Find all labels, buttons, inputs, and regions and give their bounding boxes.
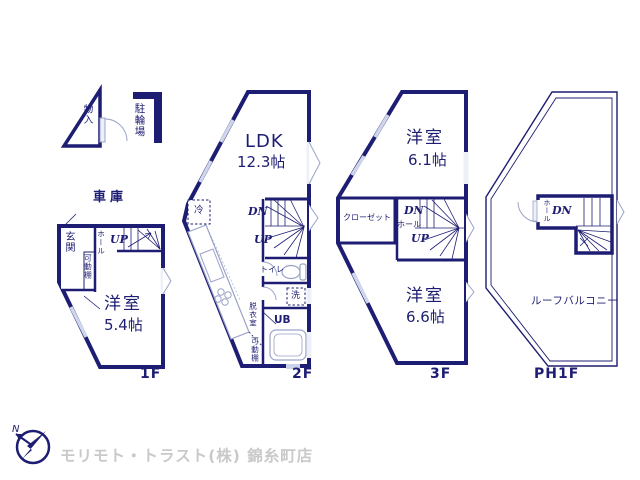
- floor-label-ph1f: PH1F: [534, 367, 579, 381]
- stairs-ph1f: [576, 198, 611, 251]
- room-upper-size-3f: 6.1帖: [408, 153, 447, 168]
- ldk-size-label: 12.3帖: [237, 155, 285, 170]
- fridge-label: 冷: [194, 206, 204, 216]
- floor-label-2f: 2F: [292, 367, 313, 381]
- room-upper-label-3f: 洋室: [406, 130, 444, 147]
- shelf-label-2f: 可動棚: [251, 337, 259, 363]
- floor-label-3f: 3F: [430, 367, 451, 381]
- storage-label: 物入: [82, 104, 92, 125]
- door-gap: [262, 287, 265, 300]
- shelf-label-1f: 可動棚: [84, 254, 92, 280]
- window: [464, 152, 469, 184]
- up-label-1f: UP: [110, 234, 128, 245]
- floor-plan-image: N 物入 駐輪場 車庫 玄関 可動棚 ホール UP 洋室 5.4帖 1F LDK…: [0, 0, 640, 480]
- bay-window: [309, 142, 320, 184]
- compass-icon: N: [12, 424, 49, 463]
- floor-plan-ph1f: [486, 92, 624, 366]
- ldk-label: LDK: [245, 133, 284, 151]
- dn-label-3f: DN: [404, 205, 424, 216]
- dn-label-2f: DN: [248, 206, 268, 217]
- bay-window: [466, 282, 474, 302]
- bay-window: [163, 268, 171, 294]
- floor-label-1f: 1F: [140, 367, 161, 381]
- room-door: [84, 296, 100, 309]
- bicycle-parking-label: 駐輪場: [134, 103, 145, 138]
- window: [71, 307, 86, 337]
- entrance-label: 玄関: [63, 231, 73, 253]
- window: [200, 161, 211, 182]
- hall-label-ph1f: ホール: [543, 199, 550, 223]
- bay-window: [466, 214, 474, 242]
- company-name: モリモト・トラスト(株) 錦糸町店: [60, 449, 313, 465]
- door-swing-arc: [105, 119, 127, 141]
- room-size-1f: 5.4帖: [104, 318, 143, 333]
- door-leaf: [533, 201, 537, 221]
- toilet-label: トイレ: [260, 266, 284, 274]
- roof-balcony-label: ルーフバルコニー: [531, 296, 618, 307]
- garage-label: 車庫: [93, 191, 127, 204]
- up-label-3f: UP: [411, 233, 429, 244]
- room-lower-label-3f: 洋室: [406, 288, 444, 305]
- room-label-1f: 洋室: [104, 296, 142, 313]
- floor-plan-drawing: N: [0, 0, 640, 480]
- window: [353, 273, 368, 303]
- north-label: N: [12, 424, 20, 435]
- room-lower-size-3f: 6.6帖: [406, 310, 445, 325]
- laundry-label: 洗: [291, 292, 300, 301]
- window: [307, 288, 312, 304]
- bath-label: UB: [274, 315, 291, 326]
- hall-label-3f: ホール: [397, 221, 421, 229]
- storage-door: [100, 118, 105, 142]
- closet-label: クローゼット: [343, 214, 391, 222]
- up-label-2f: UP: [254, 234, 272, 245]
- bicycle-area-wall: [154, 92, 162, 143]
- window: [221, 120, 233, 142]
- window: [375, 115, 388, 137]
- hall-label-1f: ホール: [97, 230, 105, 256]
- bay-window: [309, 205, 318, 231]
- dressing-room-label: 脱衣室: [249, 302, 257, 328]
- bay-window: [617, 200, 624, 224]
- window: [352, 156, 364, 175]
- dn-label-ph1f: DN: [552, 205, 572, 216]
